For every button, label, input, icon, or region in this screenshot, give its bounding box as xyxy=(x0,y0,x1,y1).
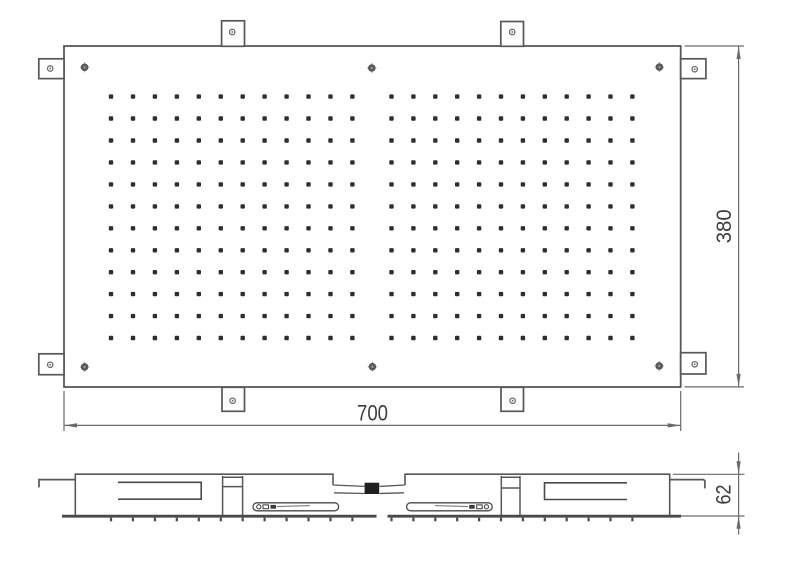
svg-text:62: 62 xyxy=(713,485,736,505)
svg-text:380: 380 xyxy=(713,209,736,243)
svg-text:700: 700 xyxy=(357,401,388,426)
